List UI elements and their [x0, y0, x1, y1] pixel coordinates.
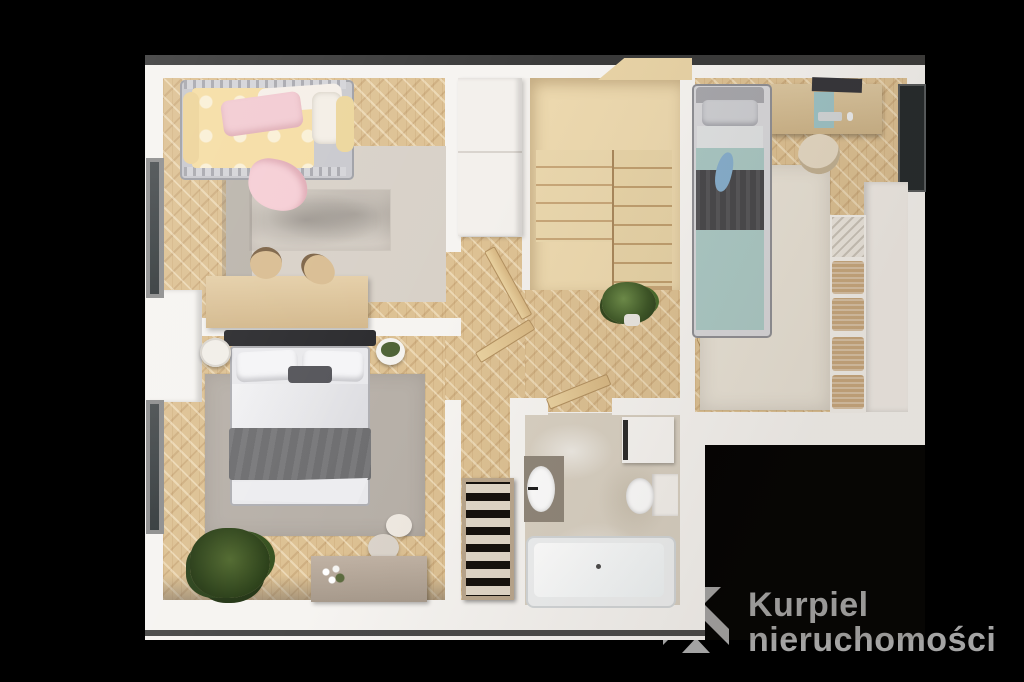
master-window-glass — [150, 404, 159, 530]
right-sheet-teal-bottom — [696, 230, 764, 330]
master-duvet — [232, 384, 368, 430]
toilet-bowl — [626, 478, 654, 514]
stairs-divider — [612, 150, 614, 290]
child-pillow-yellow-small — [336, 96, 354, 152]
desk-mouse — [847, 112, 853, 121]
child-room-window — [146, 158, 164, 298]
master-side-table — [200, 338, 231, 367]
floor-plan-render: Kurpiel nieruchomości — [0, 0, 1024, 682]
master-headboard — [224, 330, 376, 346]
right-room-window — [898, 84, 926, 192]
wicker-basket-2 — [832, 298, 864, 331]
bottom-wall-edge — [145, 630, 705, 636]
wall-bathroom-top-left — [510, 398, 548, 415]
hall-plant-pot — [624, 314, 640, 326]
wall-bathroom-top-right — [612, 398, 695, 415]
wicker-basket-1 — [832, 261, 864, 294]
master-blanket — [229, 428, 371, 480]
stairs-upper-flight — [536, 150, 614, 242]
right-pillow — [702, 100, 758, 126]
desk-chair-teal — [814, 92, 834, 128]
bathtub-drain — [596, 564, 601, 569]
master-room-window — [146, 400, 164, 534]
stairs-lower-flight — [614, 150, 672, 290]
wall-shaft-pier — [150, 290, 202, 402]
child-play-table — [206, 276, 368, 328]
console-flowers — [320, 564, 348, 588]
wicker-basket-3 — [832, 337, 864, 371]
child-window-glass — [150, 162, 159, 294]
right-unit-side-panel — [864, 182, 908, 412]
right-basket-unit — [830, 215, 866, 413]
unit-fabric-top — [832, 217, 864, 257]
child-bolster-pillow — [183, 92, 199, 164]
sink-faucet — [528, 487, 538, 490]
master-foot-fold — [232, 478, 368, 504]
towel-shelf-interior — [466, 482, 510, 596]
bathtub-basin — [534, 543, 664, 597]
wall-master-right — [445, 400, 461, 600]
floor-plan — [0, 0, 1024, 682]
child-stool-1 — [250, 247, 282, 279]
desk-monitor — [812, 77, 862, 93]
bathtub — [526, 536, 676, 608]
shower-glass-strip — [623, 420, 628, 460]
towel-shelf-cabinet — [462, 478, 514, 600]
top-wall-edge — [145, 55, 925, 65]
hall-wardrobe — [458, 78, 522, 236]
toilet-cistern — [652, 474, 678, 516]
bathroom-cabinet — [622, 417, 674, 463]
master-pouf-small — [386, 514, 412, 537]
stairwell-left-stringer — [522, 78, 530, 290]
stairwell — [530, 78, 680, 290]
desk-keyboard — [818, 112, 842, 121]
wicker-basket-4 — [832, 375, 864, 409]
right-sheet-white — [697, 126, 763, 148]
master-cushion-dark — [288, 366, 332, 383]
